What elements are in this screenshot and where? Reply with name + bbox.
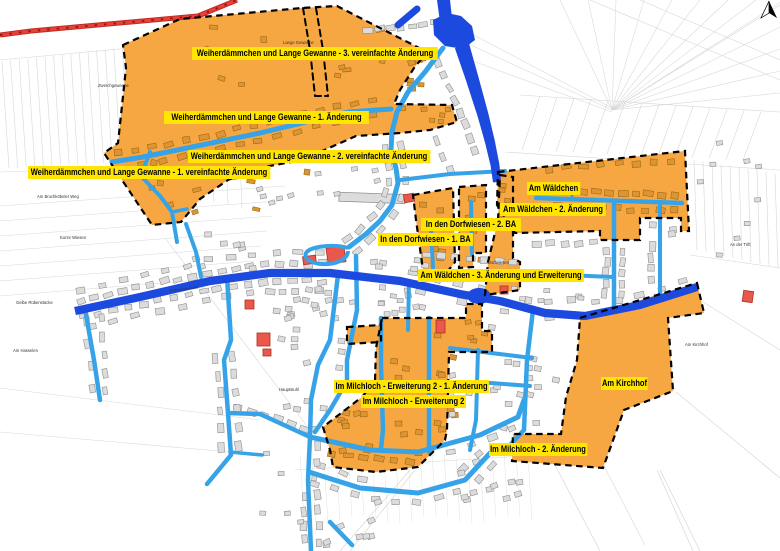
svg-text:Kurze Wiesen: Kurze Wiesen [60, 235, 87, 240]
svg-text:Am Hasselen: Am Hasselen [13, 348, 39, 353]
svg-text:Hauptstuhl: Hauptstuhl [279, 387, 299, 392]
svg-text:Zwerchgewanne: Zwerchgewanne [98, 83, 129, 88]
svg-text:Lange Gewanne: Lange Gewanne [283, 40, 314, 45]
svg-text:Am Bruchköbeler Weg: Am Bruchköbeler Weg [37, 194, 79, 199]
svg-text:Am Kirchhof: Am Kirchhof [685, 342, 709, 347]
svg-text:Gelbe Rübenstücke: Gelbe Rübenstücke [16, 300, 53, 305]
svg-text:Dorfwiesen: Dorfwiesen [488, 260, 510, 265]
svg-text:An der Trift: An der Trift [730, 242, 751, 247]
